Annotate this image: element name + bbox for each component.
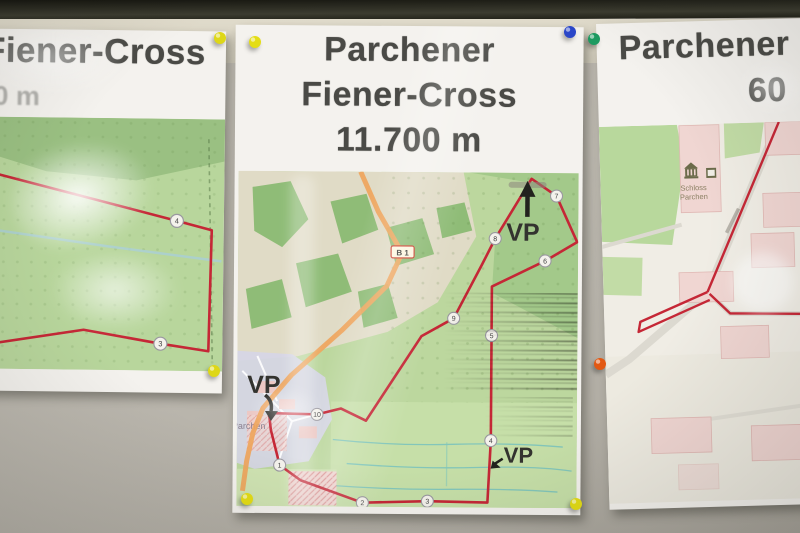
vp-label: VP (504, 443, 534, 468)
push-pin (240, 492, 254, 506)
svg-text:7: 7 (555, 194, 559, 201)
center-map-svg: Parchen B 1 1 2 3 (236, 171, 578, 508)
push-pin (207, 364, 221, 378)
svg-text:8: 8 (493, 236, 497, 243)
vp-label: VP (506, 219, 540, 247)
svg-text:9: 9 (452, 316, 456, 323)
left-map-svg: 4 3 (0, 117, 225, 372)
poster-center-map: Parchen B 1 1 2 3 (236, 171, 578, 508)
push-pin (563, 25, 577, 39)
road-shield-b1: B 1 (391, 246, 414, 258)
svg-text:6: 6 (543, 258, 547, 265)
svg-text:B 1: B 1 (396, 248, 409, 257)
waypoint-marker: 3 (154, 337, 167, 350)
waypoint-marker: 4 (170, 214, 183, 227)
push-pin (213, 31, 227, 45)
svg-text:5: 5 (490, 333, 494, 340)
svg-text:3: 3 (425, 499, 429, 506)
poster-center-title-line2: Fiener-Cross (235, 72, 583, 119)
poster-left-title: Fiener-Cross (0, 31, 206, 74)
svg-text:2: 2 (360, 500, 364, 507)
svg-text:4: 4 (175, 216, 179, 225)
right-map-svg: Schloss Parchen (599, 121, 800, 504)
poster-right: Parchener 60 (596, 18, 800, 510)
push-pin (569, 497, 583, 511)
svg-text:Parchen: Parchen (680, 192, 708, 202)
push-pin (593, 357, 607, 371)
poster-left-map: 4 3 (0, 117, 225, 372)
museum-icon (706, 168, 716, 178)
right-map-park (603, 256, 644, 297)
vp-label: VP (247, 371, 281, 399)
svg-text:4: 4 (489, 438, 493, 445)
left-map-texture (0, 117, 225, 372)
poster-center-title-line3: 11.700 m (235, 117, 583, 164)
svg-text:10: 10 (313, 412, 321, 419)
poster-right-map: Schloss Parchen (599, 121, 800, 504)
poster-left: Fiener-Cross 0 m 4 (0, 29, 226, 394)
push-pin (587, 32, 601, 46)
poster-center-title: Parchener Fiener-Cross 11.700 m (235, 27, 584, 164)
poster-right-title-line1: Parchener (618, 25, 790, 69)
village-label: Parchen (236, 421, 265, 431)
poster-right-title-line2-partial: 60 (747, 71, 787, 111)
push-pin (248, 35, 262, 49)
svg-text:1: 1 (278, 463, 282, 470)
poster-center-title-line1: Parchener (235, 27, 583, 74)
center-map-texture (387, 172, 579, 403)
svg-text:3: 3 (158, 339, 162, 348)
poster-center: Parchener Fiener-Cross 11.700 m (232, 25, 583, 515)
photo-of-map-wall: Fiener-Cross 0 m 4 (0, 0, 800, 533)
poster-left-distance-partial: 0 m (0, 81, 40, 113)
